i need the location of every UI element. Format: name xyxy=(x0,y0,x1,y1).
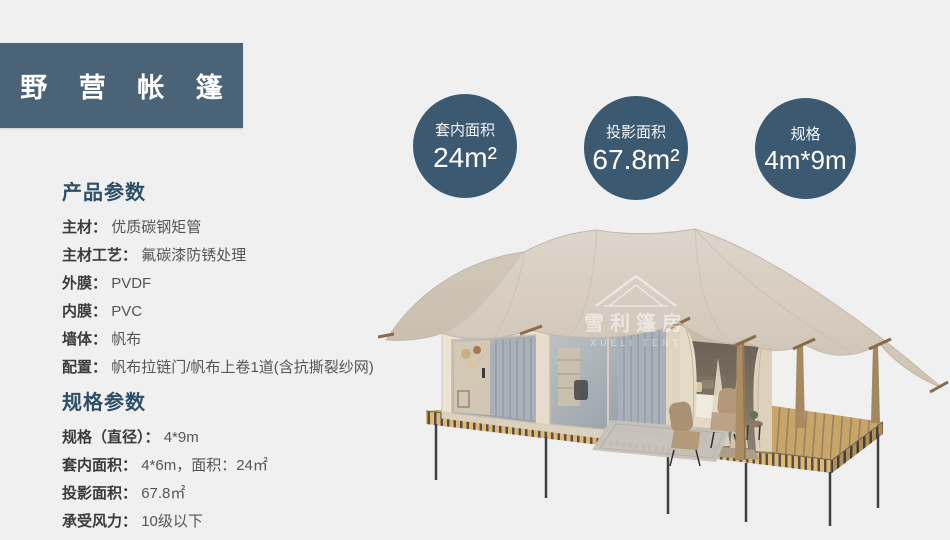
param-label: 配置： xyxy=(62,359,107,376)
param-row: 配置： 帆布拉链门/帆布上卷1道(含抗撕裂纱网) xyxy=(62,358,432,377)
param-value: 10级以下 xyxy=(141,513,203,530)
param-value: 4*9m xyxy=(164,429,199,446)
bathtub xyxy=(574,380,588,400)
param-row: 套内面积： 4*6m，面积：24㎡ xyxy=(62,456,432,475)
param-label: 投影面积： xyxy=(62,485,137,502)
watermark-cn-text: 雪利篷房 xyxy=(584,311,688,335)
param-row: 规格（直径）： 4*9m xyxy=(62,428,432,447)
param-label: 承受风力： xyxy=(62,513,137,530)
param-label: 规格（直径）： xyxy=(62,429,160,446)
param-label: 墙体： xyxy=(62,331,107,348)
spec-params-section: 规格参数 规格（直径）： 4*9m 套内面积： 4*6m，面积：24㎡ 投影面积… xyxy=(62,386,432,540)
spec-params-heading: 规格参数 xyxy=(62,386,432,415)
param-label: 外膜： xyxy=(62,275,107,292)
param-value: PVC xyxy=(111,303,142,320)
param-value: 帆布 xyxy=(111,331,141,348)
param-label: 主材工艺： xyxy=(62,247,137,264)
param-value: 4*6m，面积：24㎡ xyxy=(141,457,268,474)
stat-label: 投影面积 xyxy=(606,121,666,142)
page-title-text: 野 营 帐 篷 xyxy=(20,66,235,105)
page-title: 野 营 帐 篷 xyxy=(0,43,243,128)
stat-circle-projection-area: 投影面积 67.8m² xyxy=(584,96,688,200)
param-value: 67.8㎡ xyxy=(141,485,185,502)
param-value: 帆布拉链门/帆布上卷1道(含抗撕裂纱网) xyxy=(111,359,374,376)
param-label: 内膜： xyxy=(62,303,107,320)
stat-circle-size: 规格 4m*9m xyxy=(755,98,856,199)
param-value: PVDF xyxy=(111,275,151,292)
product-params-section: 产品参数 主材： 优质碳钢矩管 主材工艺： 氟碳漆防锈处理 外膜： PVDF 内… xyxy=(62,176,432,386)
wall-lamp xyxy=(482,368,485,378)
cabin-window-1 xyxy=(452,335,536,423)
param-value: 优质碳钢矩管 xyxy=(111,219,201,236)
param-row: 承受风力： 10级以下 xyxy=(62,512,432,531)
stat-value: 24m² xyxy=(433,143,497,172)
potted-plant xyxy=(750,411,758,419)
stat-label: 套内面积 xyxy=(435,119,495,140)
param-row: 墙体： 帆布 xyxy=(62,330,432,349)
stat-label: 规格 xyxy=(790,123,820,144)
watermark-en-text: XUELI TENT xyxy=(590,338,682,348)
stat-value: 67.8m² xyxy=(592,145,679,174)
wall-plate-decor xyxy=(461,349,471,359)
param-label: 主材： xyxy=(62,219,107,236)
pillow xyxy=(702,380,714,389)
stat-value: 4m*9m xyxy=(764,147,846,174)
param-row: 主材工艺： 氟碳漆防锈处理 xyxy=(62,246,432,265)
tent-render-image: 雪利篷房 XUELI TENT xyxy=(378,208,950,530)
param-row: 内膜： PVC xyxy=(62,302,432,321)
param-row: 外膜： PVDF xyxy=(62,274,432,293)
param-row: 主材： 优质碳钢矩管 xyxy=(62,218,432,237)
param-value: 氟碳漆防锈处理 xyxy=(141,247,246,264)
param-row: 投影面积： 67.8㎡ xyxy=(62,484,432,503)
param-label: 套内面积： xyxy=(62,457,137,474)
curtain xyxy=(490,337,536,421)
product-params-heading: 产品参数 xyxy=(62,176,432,205)
